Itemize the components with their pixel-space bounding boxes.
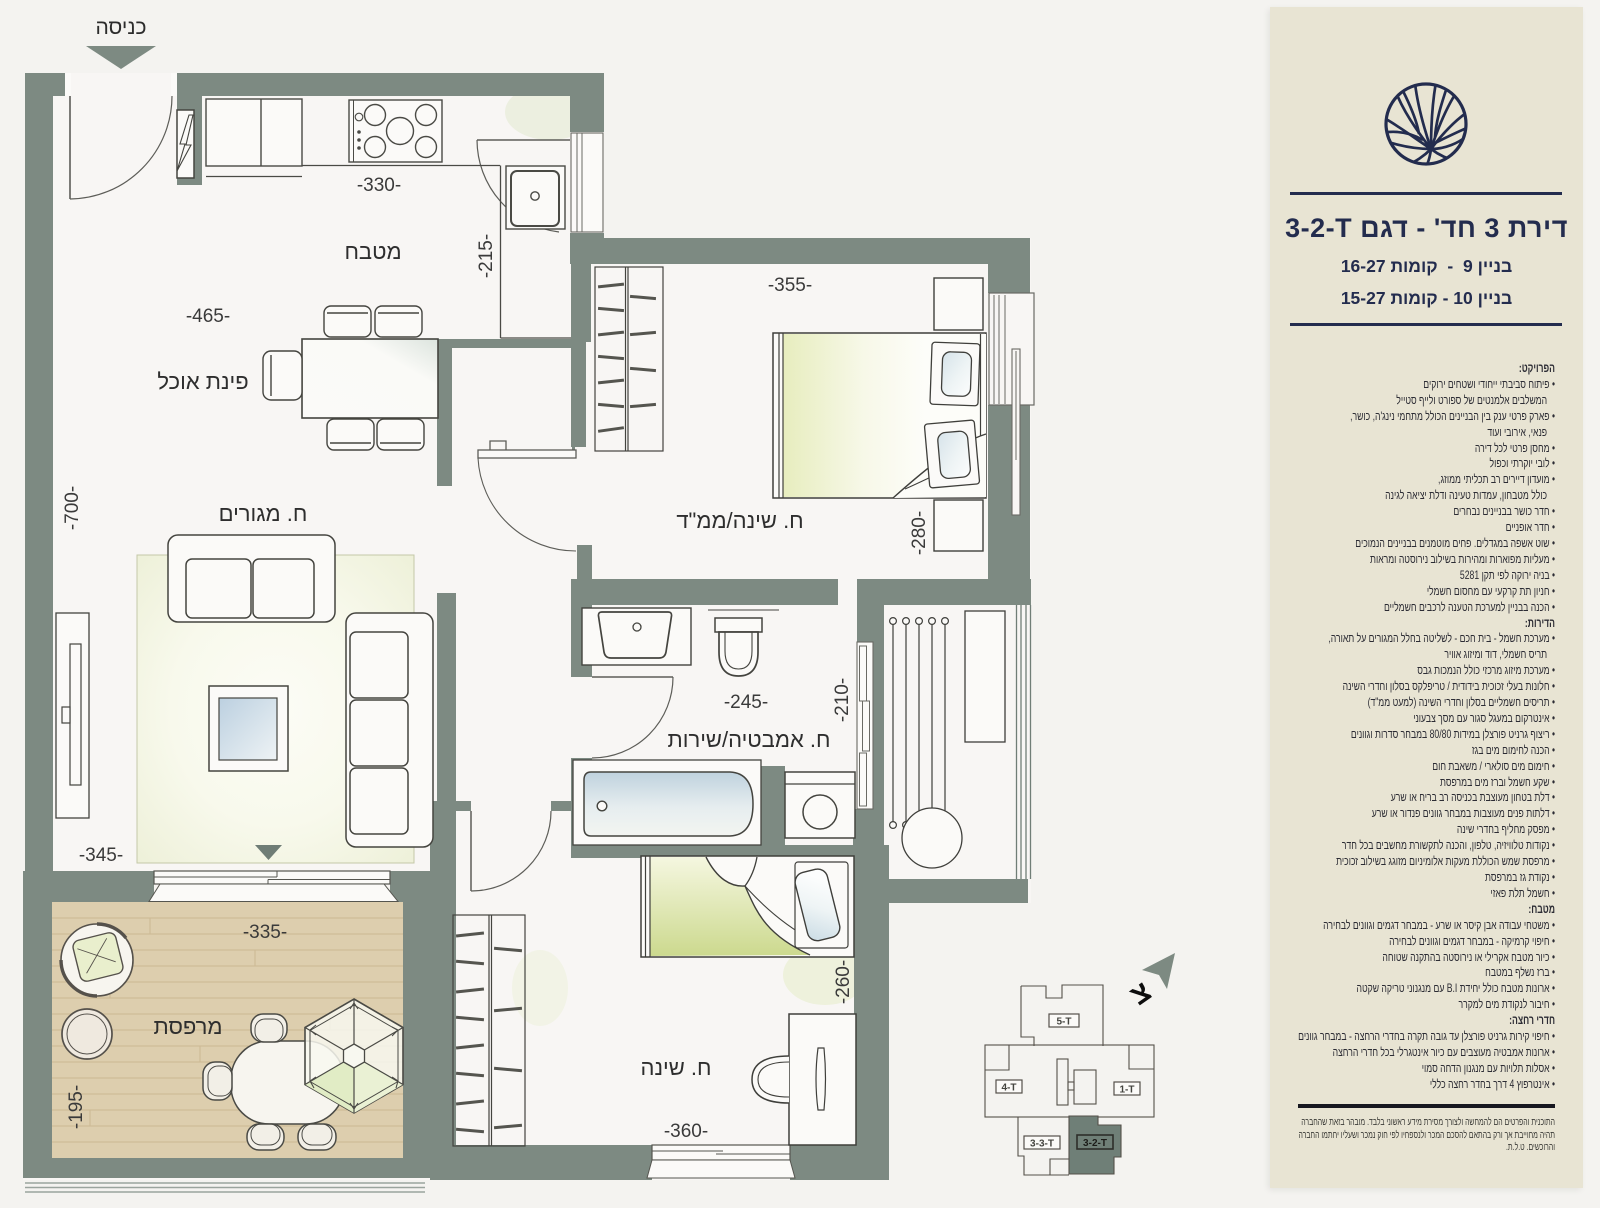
svg-text:-210-: -210- bbox=[832, 678, 853, 722]
svg-text:-465-: -465- bbox=[186, 306, 230, 327]
svg-text:מרפסת: מרפסת bbox=[153, 1014, 222, 1039]
svg-text:-215-: -215- bbox=[476, 234, 497, 278]
svg-text:-260-: -260- bbox=[833, 960, 854, 1004]
svg-text:5-T: 5-T bbox=[1057, 1017, 1072, 1028]
svg-text:-195-: -195- bbox=[66, 1085, 87, 1129]
svg-text:3-3-T: 3-3-T bbox=[1030, 1139, 1054, 1150]
svg-text:-360-: -360- bbox=[664, 1121, 708, 1142]
svg-text:4-T: 4-T bbox=[1002, 1083, 1017, 1094]
svg-text:צ: צ bbox=[1124, 975, 1157, 1011]
svg-text:1-T: 1-T bbox=[1120, 1085, 1135, 1096]
svg-text:מטבח: מטבח bbox=[344, 239, 401, 264]
svg-text:כניסה: כניסה bbox=[95, 16, 146, 39]
svg-text:-280-: -280- bbox=[909, 511, 930, 555]
svg-text:-700-: -700- bbox=[62, 486, 83, 530]
svg-text:-245-: -245- bbox=[724, 692, 768, 713]
svg-text:-335-: -335- bbox=[243, 922, 287, 943]
svg-text:3-2-T: 3-2-T bbox=[1083, 1138, 1107, 1149]
svg-text:פינת אוכל: פינת אוכל bbox=[157, 369, 248, 394]
svg-text:-330-: -330- bbox=[357, 175, 401, 196]
svg-text:ח. שינה/ממ"ד: ח. שינה/ממ"ד bbox=[676, 508, 803, 533]
svg-text:ח. מגורים: ח. מגורים bbox=[219, 501, 308, 526]
svg-text:ח. אמבטיה/שירות: ח. אמבטיה/שירות bbox=[668, 727, 831, 752]
svg-text:-355-: -355- bbox=[768, 275, 812, 296]
svg-text:ח. שינה: ח. שינה bbox=[641, 1055, 712, 1080]
svg-text:-345-: -345- bbox=[79, 845, 123, 866]
